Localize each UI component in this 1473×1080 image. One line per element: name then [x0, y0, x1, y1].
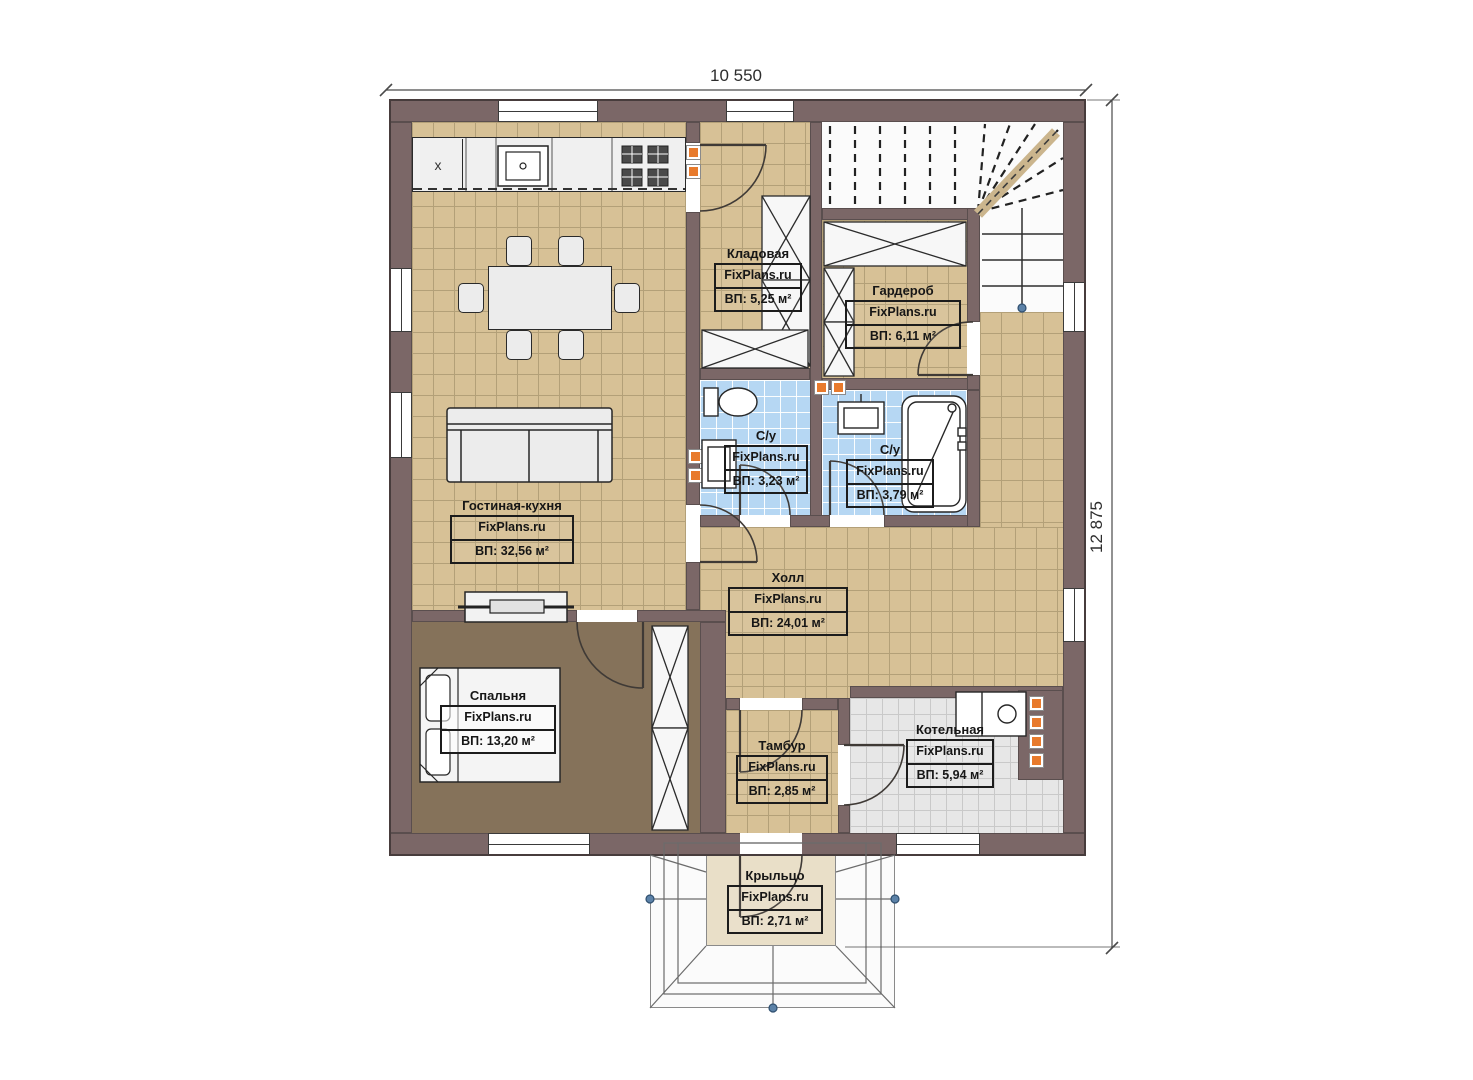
- wall-interior: [790, 515, 830, 527]
- wall-interior: [967, 375, 980, 390]
- room-name: Спальня: [440, 688, 556, 703]
- vent-marker-icon: [1030, 697, 1043, 710]
- room-label-hall: Холл FixPlans.ruВП: 24,01 м²: [728, 570, 848, 636]
- room-hall-floor-right-strip: [980, 312, 1063, 527]
- room-area: ВП: 32,56 м²: [452, 539, 572, 563]
- brand-watermark: FixPlans.ru: [848, 461, 932, 483]
- window: [1063, 282, 1085, 332]
- room-name: Гардероб: [845, 283, 961, 298]
- room-name: С/у: [846, 442, 934, 457]
- wall-exterior-right: [1063, 122, 1085, 833]
- entry-door-opening: [740, 833, 802, 855]
- wall-interior: [686, 122, 700, 143]
- wall-interior: [822, 378, 980, 390]
- dining-table: [488, 266, 612, 330]
- dining-chair: [614, 283, 640, 313]
- vent-marker-icon: [687, 146, 700, 159]
- door-opening: [686, 505, 700, 562]
- wall-interior: [802, 698, 838, 710]
- room-area: ВП: 5,25 м²: [716, 287, 800, 311]
- room-name: Холл: [728, 570, 848, 585]
- room-area: ВП: 3,23 м²: [726, 469, 806, 493]
- door-opening: [740, 515, 790, 527]
- room-label-porch: Крыльцо FixPlans.ruВП: 2,71 м²: [727, 868, 823, 934]
- wall-interior: [884, 515, 980, 527]
- dining-chair: [558, 236, 584, 266]
- room-label-vestibule: Тамбур FixPlans.ruВП: 2,85 м²: [736, 738, 828, 804]
- wall-interior: [686, 562, 700, 610]
- room-name: Кладовая: [714, 246, 802, 261]
- window: [896, 833, 980, 855]
- room-area: ВП: 2,71 м²: [729, 909, 821, 933]
- wall-interior: [822, 208, 980, 220]
- dining-chair: [506, 236, 532, 266]
- room-area: ВП: 13,20 м²: [442, 729, 554, 753]
- room-label-living-kitchen: Гостиная-кухня FixPlans.ruВП: 32,56 м²: [450, 498, 574, 564]
- brand-watermark: FixPlans.ru: [730, 589, 846, 611]
- kitchen-corner-cabinet: x: [414, 139, 463, 190]
- window: [390, 268, 412, 332]
- window: [390, 392, 412, 458]
- kitchen-corner-mark: x: [435, 157, 442, 173]
- brand-watermark: FixPlans.ru: [847, 302, 959, 324]
- vent-marker-icon: [815, 381, 828, 394]
- room-label-wardrobe: Гардероб FixPlans.ruВП: 6,11 м²: [845, 283, 961, 349]
- door-opening: [577, 610, 637, 622]
- dimension-width-label: 10 550: [656, 66, 816, 86]
- wall-interior: [700, 368, 810, 380]
- window: [488, 833, 590, 855]
- room-label-storage: Кладовая FixPlans.ruВП: 5,25 м²: [714, 246, 802, 312]
- wall-exterior-left: [390, 122, 412, 833]
- dining-chair: [558, 330, 584, 360]
- wall-interior: [967, 390, 980, 527]
- window: [1063, 588, 1085, 642]
- stairs-lower-zone: [980, 208, 1063, 312]
- brand-watermark: FixPlans.ru: [738, 757, 826, 779]
- door-opening: [740, 698, 802, 710]
- wall-interior: [700, 622, 726, 833]
- door-opening: [967, 322, 980, 375]
- wall-interior: [810, 122, 822, 527]
- vent-marker-icon: [687, 165, 700, 178]
- room-label-boiler-room: Котельная FixPlans.ruВП: 5,94 м²: [906, 722, 994, 788]
- room-name: Котельная: [906, 722, 994, 737]
- wall-interior: [412, 610, 577, 622]
- stairs-upper-zone: [822, 122, 1063, 208]
- door-opening: [830, 515, 884, 527]
- wall-interior: [838, 698, 850, 745]
- vent-marker-icon: [1030, 716, 1043, 729]
- vent-marker-icon: [832, 381, 845, 394]
- dining-chair: [506, 330, 532, 360]
- vent-marker-icon: [689, 450, 702, 463]
- window: [498, 100, 598, 122]
- wall-interior: [838, 805, 850, 833]
- vent-marker-icon: [689, 469, 702, 482]
- room-area: ВП: 24,01 м²: [730, 611, 846, 635]
- room-label-bathroom-2: С/у FixPlans.ruВП: 3,79 м²: [846, 442, 934, 508]
- wall-interior: [726, 698, 740, 710]
- room-area: ВП: 5,94 м²: [908, 763, 992, 787]
- room-name: С/у: [724, 428, 808, 443]
- room-label-bedroom: Спальня FixPlans.ruВП: 13,20 м²: [440, 688, 556, 754]
- brand-watermark: FixPlans.ru: [716, 265, 800, 287]
- room-storage-floor: [700, 122, 810, 368]
- room-name: Гостиная-кухня: [450, 498, 574, 513]
- brand-watermark: FixPlans.ru: [729, 887, 821, 909]
- wall-interior: [637, 610, 726, 622]
- room-area: ВП: 2,85 м²: [738, 779, 826, 803]
- room-area: ВП: 6,11 м²: [847, 324, 959, 348]
- window: [726, 100, 794, 122]
- door-opening: [838, 745, 850, 805]
- dimension-height-label: 12 875: [1087, 452, 1107, 602]
- wall-interior: [700, 515, 740, 527]
- vent-marker-icon: [1030, 735, 1043, 748]
- room-name: Крыльцо: [727, 868, 823, 883]
- dining-chair: [458, 283, 484, 313]
- brand-watermark: FixPlans.ru: [908, 741, 992, 763]
- vent-marker-icon: [1030, 754, 1043, 767]
- brand-watermark: FixPlans.ru: [442, 707, 554, 729]
- wall-interior: [967, 208, 980, 322]
- room-name: Тамбур: [736, 738, 828, 753]
- room-label-bathroom-1: С/у FixPlans.ruВП: 3,23 м²: [724, 428, 808, 494]
- brand-watermark: FixPlans.ru: [452, 517, 572, 539]
- floor-plan: x: [0, 0, 1473, 1080]
- room-area: ВП: 3,79 м²: [848, 483, 932, 507]
- brand-watermark: FixPlans.ru: [726, 447, 806, 469]
